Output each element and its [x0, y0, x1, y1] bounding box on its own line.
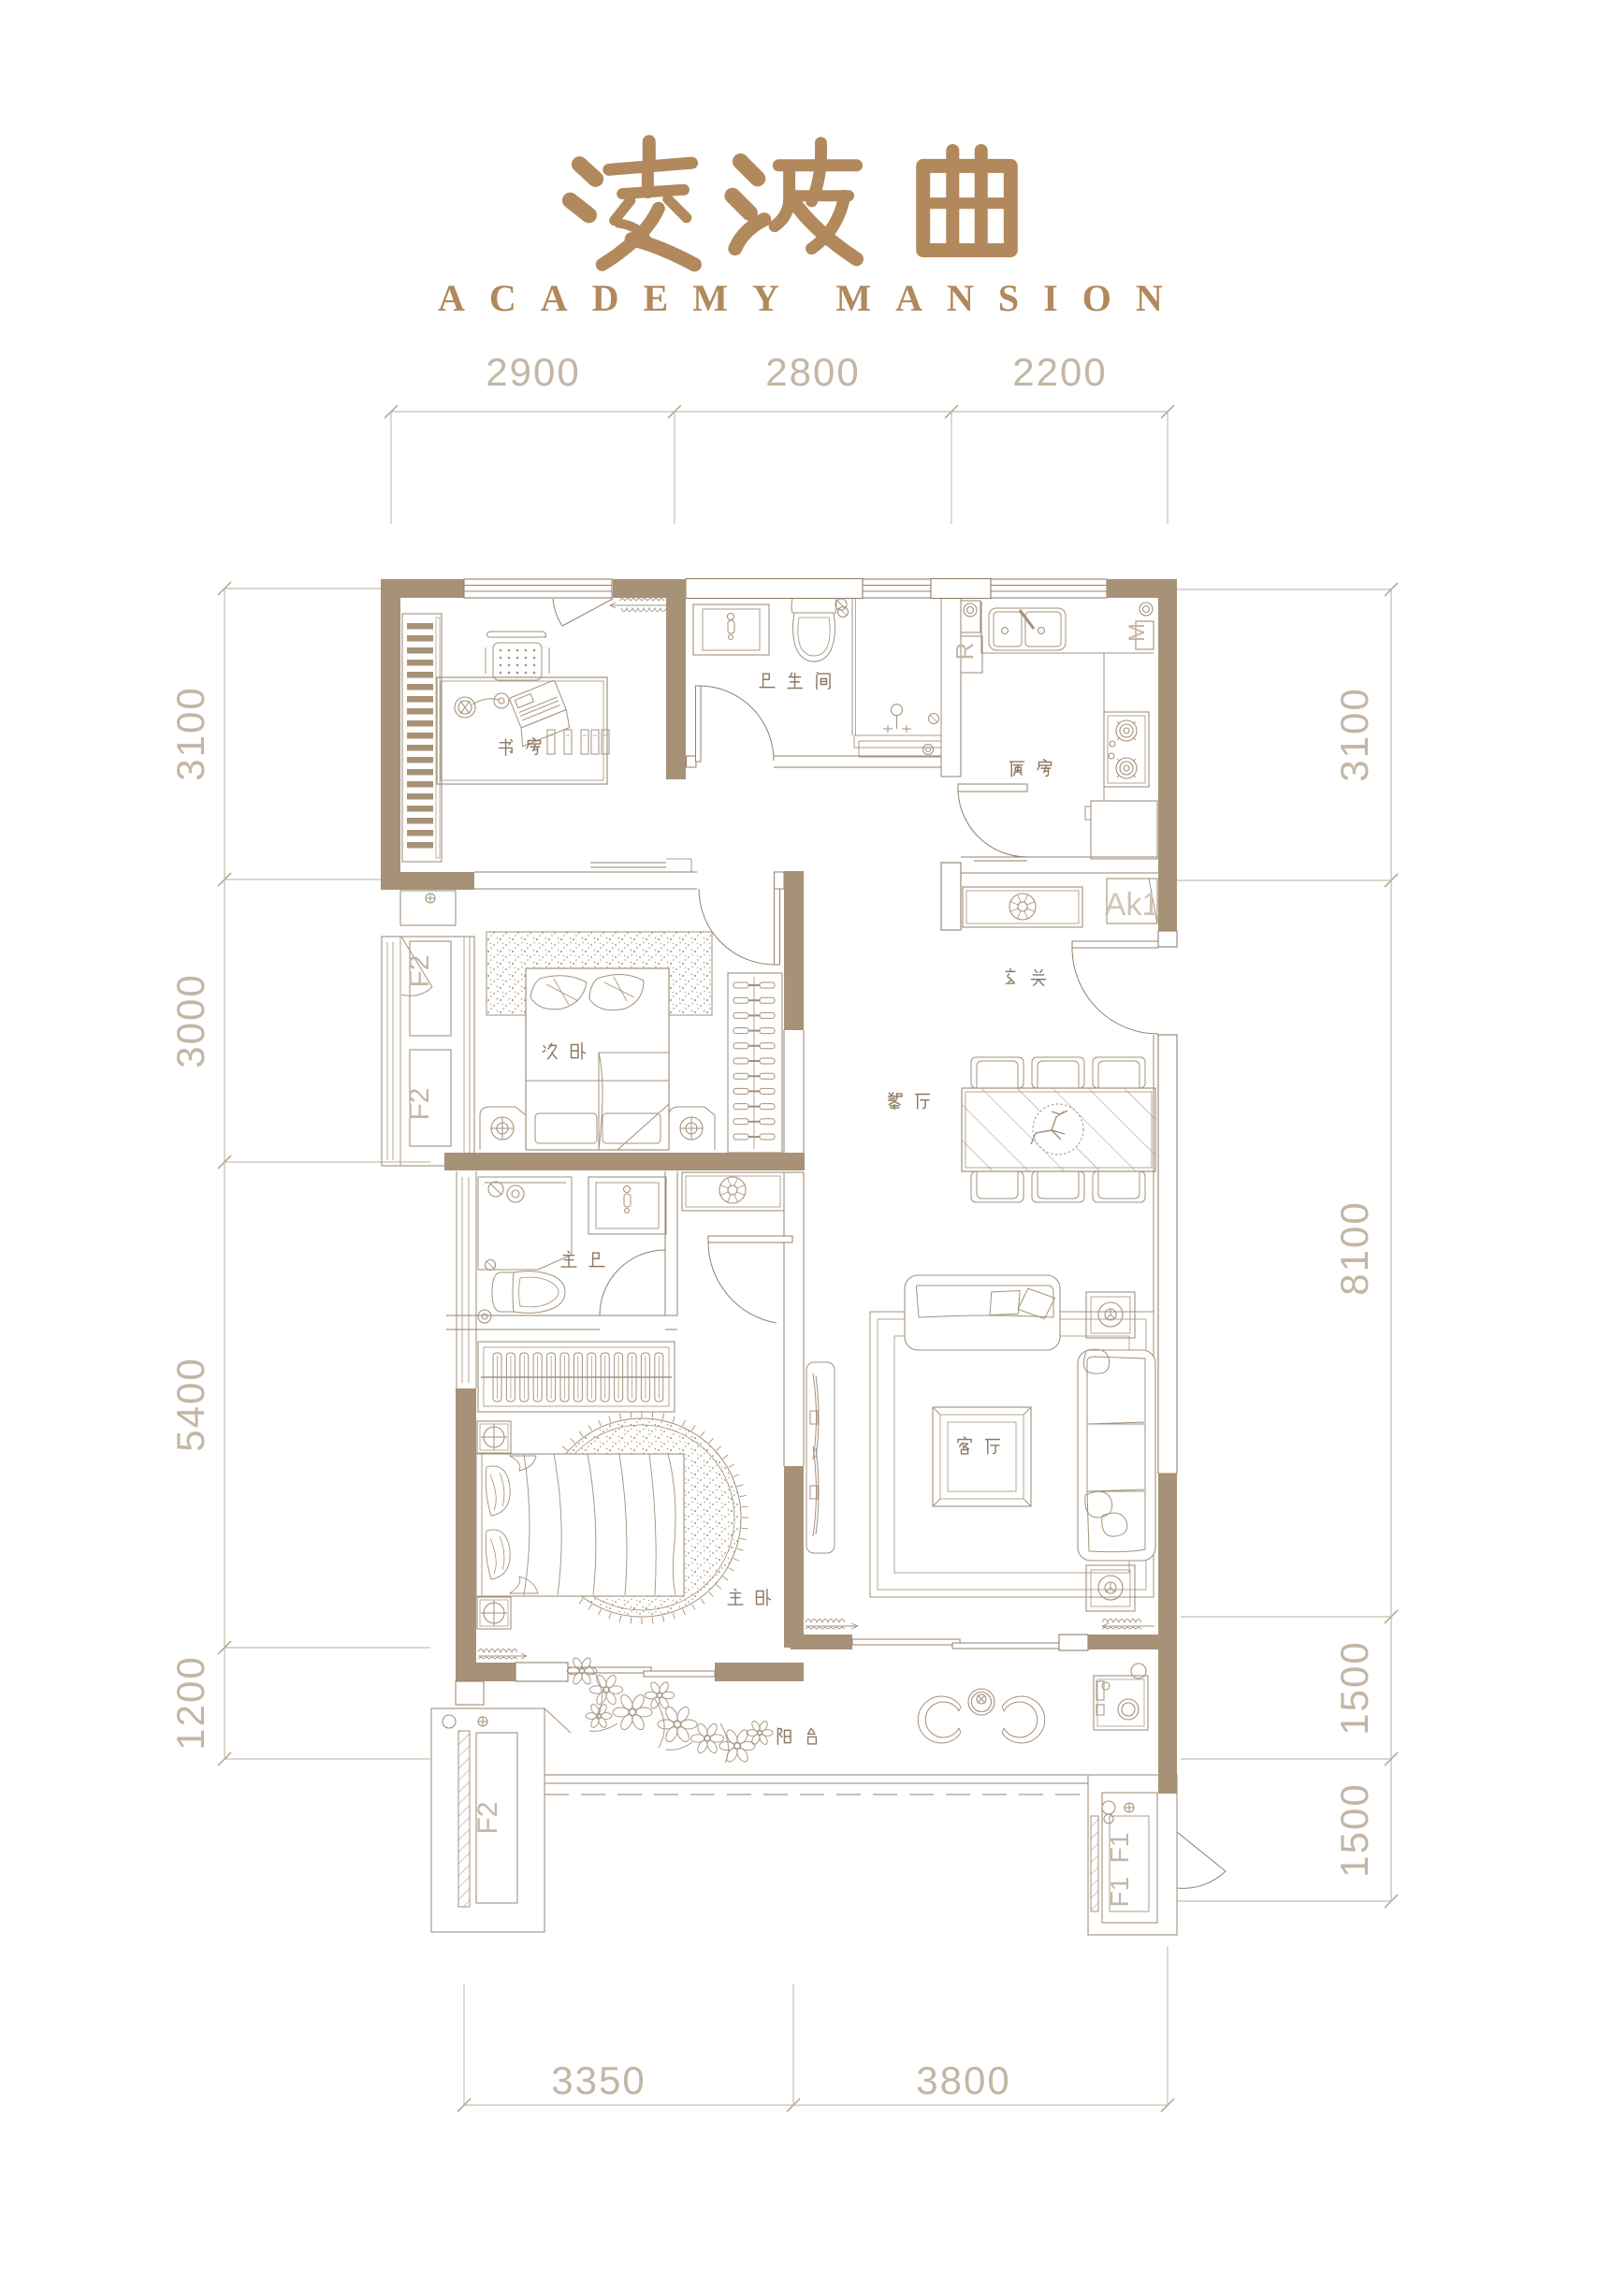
svg-text:F1: F1 [1105, 1877, 1134, 1908]
svg-text:F1: F1 [1105, 1833, 1134, 1864]
svg-text:Ak1: Ak1 [1105, 887, 1160, 923]
svg-text:8100: 8100 [1332, 1200, 1376, 1295]
svg-text:1500: 1500 [1332, 1782, 1376, 1877]
svg-text:3100: 3100 [1332, 687, 1376, 781]
svg-text:2200: 2200 [1012, 350, 1107, 394]
svg-text:3000: 3000 [168, 973, 212, 1068]
svg-text:2800: 2800 [765, 350, 860, 394]
svg-text:2900: 2900 [486, 350, 580, 394]
svg-text:F2: F2 [404, 954, 435, 987]
svg-text:3100: 3100 [168, 686, 212, 780]
svg-text:1500: 1500 [1332, 1640, 1376, 1735]
svg-text:F2: F2 [472, 1801, 503, 1834]
svg-text:F2: F2 [404, 1087, 435, 1120]
svg-text:5400: 5400 [168, 1357, 212, 1451]
svg-text:M: M [1125, 623, 1150, 642]
svg-text:R: R [951, 643, 979, 661]
svg-text:ACADEMY MANSION: ACADEMY MANSION [438, 277, 1187, 319]
svg-text:3800: 3800 [916, 2058, 1010, 2102]
svg-text:3350: 3350 [551, 2058, 646, 2102]
svg-text:1200: 1200 [168, 1655, 212, 1750]
